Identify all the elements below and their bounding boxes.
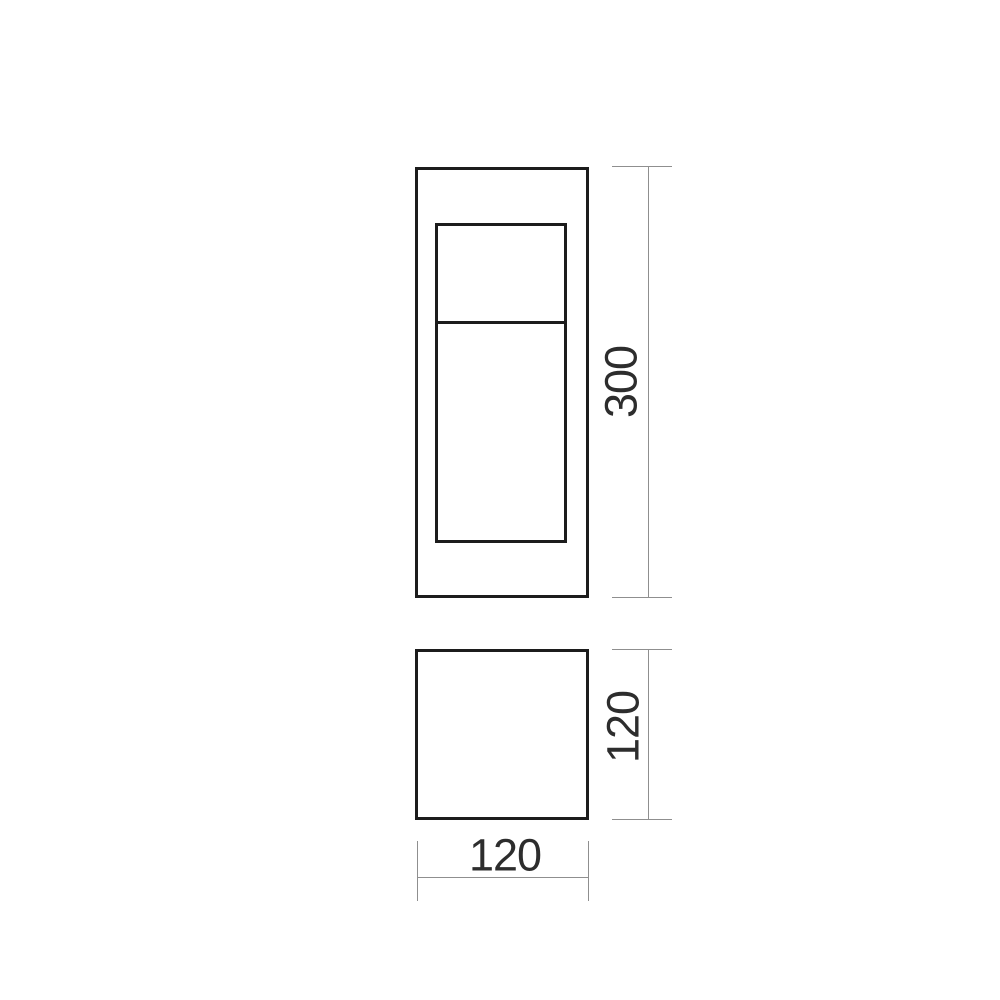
width-dimension-label: 120 — [469, 833, 541, 878]
depth-dimension-label: 120 — [601, 691, 646, 763]
front-view-inner-panel — [435, 223, 567, 543]
height-dimension-line — [648, 166, 649, 598]
front-view-divider-line — [435, 321, 567, 324]
depth-dimension-tick-bottom — [612, 819, 672, 820]
height-dimension-tick-top — [612, 166, 672, 167]
height-dimension-label: 300 — [599, 346, 644, 418]
height-dimension-tick-bottom — [612, 597, 672, 598]
depth-dimension-tick-top — [612, 649, 672, 650]
width-dimension-tick-right — [588, 841, 589, 901]
drawing-canvas: 300 120 120 — [0, 0, 1000, 1000]
plan-view-rect — [415, 649, 589, 820]
width-dimension-tick-left — [417, 841, 418, 901]
